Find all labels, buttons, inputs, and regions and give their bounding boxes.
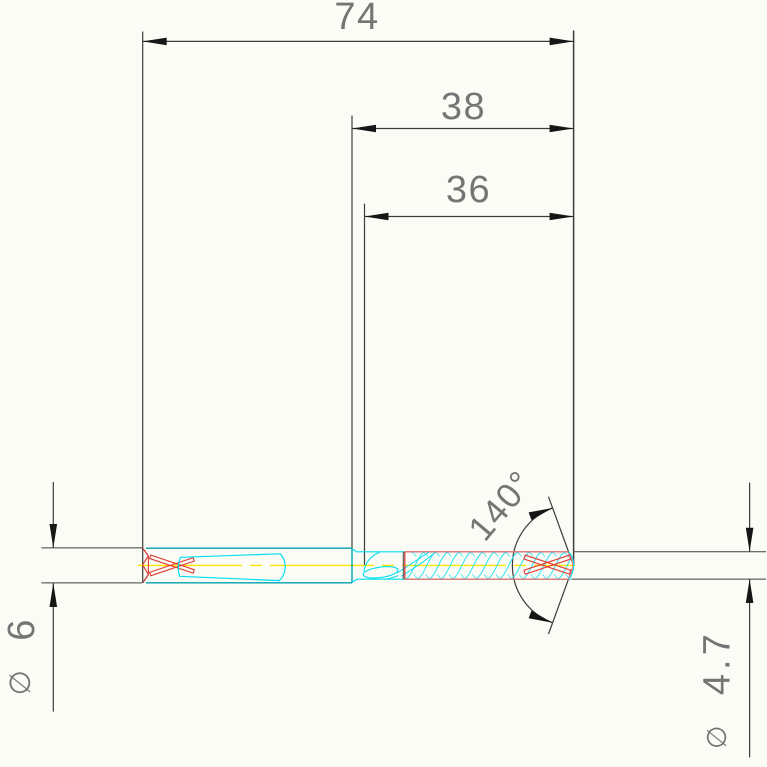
svg-text:∅: ∅ [5,669,37,696]
svg-text:∅: ∅ [702,724,732,749]
svg-text:4.7: 4.7 [696,630,738,695]
svg-text:140°: 140° [461,463,541,548]
svg-text:36: 36 [446,169,491,211]
svg-text:74: 74 [334,0,379,38]
svg-text:6: 6 [1,618,43,641]
svg-text:38: 38 [441,86,486,128]
